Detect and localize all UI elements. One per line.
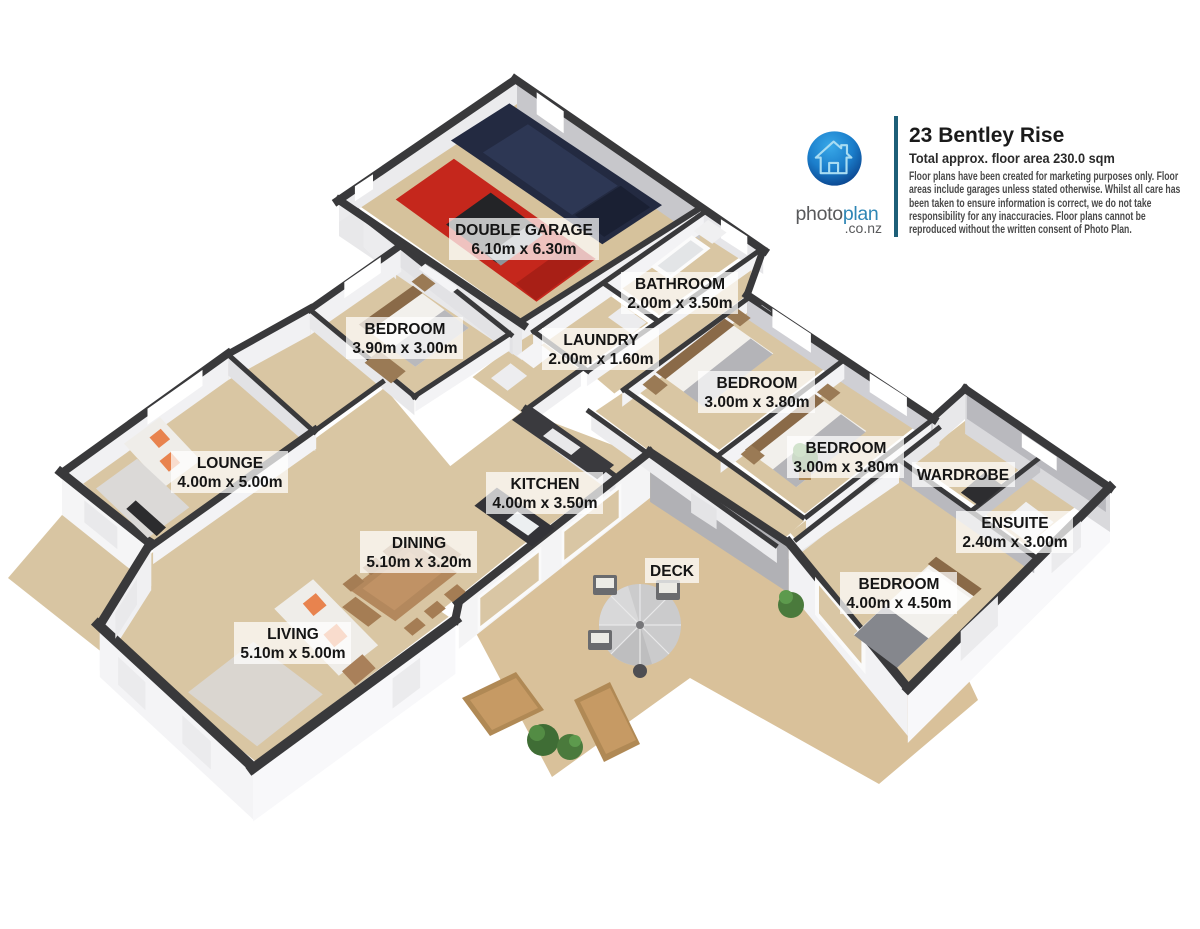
svg-text:6.10m x 6.30m: 6.10m x 6.30m <box>471 241 576 258</box>
svg-text:4.00m x 3.50m: 4.00m x 3.50m <box>492 495 597 512</box>
svg-text:LOUNGE: LOUNGE <box>197 455 263 472</box>
svg-text:3.00m x 3.80m: 3.00m x 3.80m <box>793 459 898 476</box>
svg-text:2.00m x 1.60m: 2.00m x 1.60m <box>548 351 653 368</box>
svg-text:3.00m x 3.80m: 3.00m x 3.80m <box>704 394 809 411</box>
svg-text:4.00m x 5.00m: 4.00m x 5.00m <box>177 474 282 491</box>
svg-text:DOUBLE GARAGE: DOUBLE GARAGE <box>455 222 593 239</box>
svg-text:4.00m x 4.50m: 4.00m x 4.50m <box>846 595 951 612</box>
svg-text:BEDROOM: BEDROOM <box>859 576 940 593</box>
svg-text:LAUNDRY: LAUNDRY <box>563 332 639 349</box>
svg-text:LIVING: LIVING <box>267 626 319 643</box>
svg-text:ENSUITE: ENSUITE <box>981 515 1048 532</box>
svg-text:BATHROOM: BATHROOM <box>635 276 725 293</box>
svg-text:5.10m x 3.20m: 5.10m x 3.20m <box>366 554 471 571</box>
svg-text:KITCHEN: KITCHEN <box>511 476 580 493</box>
svg-text:WARDROBE: WARDROBE <box>917 467 1009 484</box>
svg-text:DECK: DECK <box>650 563 695 580</box>
svg-text:BEDROOM: BEDROOM <box>365 321 446 338</box>
svg-text:2.00m x 3.50m: 2.00m x 3.50m <box>627 295 732 312</box>
svg-text:DINING: DINING <box>392 535 446 552</box>
svg-text:2.40m x 3.00m: 2.40m x 3.00m <box>962 534 1067 551</box>
svg-text:BEDROOM: BEDROOM <box>806 440 887 457</box>
svg-text:BEDROOM: BEDROOM <box>717 375 798 392</box>
svg-text:3.90m x 3.00m: 3.90m x 3.00m <box>352 340 457 357</box>
svg-text:5.10m x 5.00m: 5.10m x 5.00m <box>240 645 345 662</box>
